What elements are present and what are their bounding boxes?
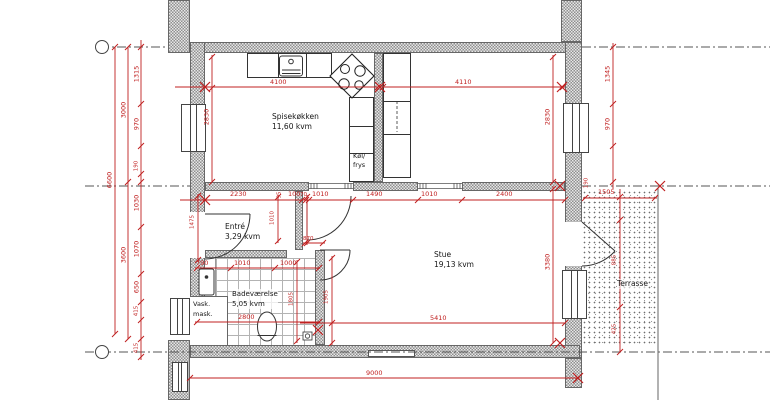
appliance-name: Køl/ [353, 152, 365, 160]
dim-label: 4110 [455, 79, 472, 86]
dim-label: 1505 [598, 189, 615, 196]
dim-label: 970 [134, 118, 141, 130]
room-area: 19,13 kvm [434, 260, 474, 269]
dim-label: 1010 [421, 191, 438, 198]
dim-label: 6600 [107, 172, 114, 189]
room-name: Terrasse [617, 279, 648, 288]
room-label-entre: Entré 3,29 kvm [225, 222, 260, 242]
dim-label: 5410 [430, 315, 447, 322]
room-name: Badeværelse [232, 290, 278, 298]
toilet-icon [258, 312, 277, 341]
stove-icon [330, 54, 374, 98]
dim-label: 1345 [605, 66, 612, 83]
appliance-name: Vask. [193, 300, 210, 308]
terrace-door-swing [582, 222, 615, 266]
plan-linework [0, 0, 770, 400]
room-area: 3,29 kvm [225, 232, 260, 241]
label-vask-mask: Vask. mask. [193, 299, 213, 319]
bathroom-sink-icon [199, 269, 214, 295]
room-area: 11,60 kvm [272, 122, 312, 131]
dim-label: 425 [612, 324, 619, 335]
dim-label: 70 [300, 192, 307, 199]
grid-axis-bubble [96, 41, 109, 54]
dim-label: 970 [605, 118, 612, 130]
kitchen-sink-icon [280, 56, 303, 76]
room-area: 5,05 kvm [232, 300, 265, 308]
room-label-stue: Stue 19,13 kvm [434, 250, 474, 270]
bathroom-door-swing [320, 250, 350, 280]
dim-label: 2230 [230, 191, 247, 198]
dim-label: 790 [196, 260, 208, 267]
dim-label: 415 [134, 343, 141, 354]
dim-label: 885 [612, 255, 619, 266]
grid-axis-bubbles [96, 41, 109, 359]
dim-label: 190 [584, 178, 591, 189]
dim-label: 1070 [134, 241, 141, 258]
appliance-name: frys [353, 161, 365, 169]
dim-label: 100 [288, 191, 300, 198]
dim-label: 2800 [238, 314, 255, 321]
dim-label: 1315 [134, 66, 141, 83]
room-label-terrasse: Terrasse [617, 279, 648, 289]
room-name: Entré [225, 222, 245, 231]
floor-plan: Spisekøkken 11,60 kvm Entré 3,29 kvm Stu… [0, 0, 770, 400]
dim-label: 3380 [545, 254, 552, 271]
dim-label: 870 [303, 236, 314, 243]
room-name: Stue [434, 250, 451, 259]
dim-label: 1010 [270, 211, 277, 225]
dim-label: 9000 [366, 370, 383, 377]
grid-axis-bubble [96, 346, 109, 359]
stue-door-swing [307, 196, 351, 240]
dim-label: 1010 [234, 260, 251, 267]
dim-label: 4100 [270, 79, 287, 86]
dim-label: 1475 [190, 215, 197, 229]
dim-label: 95 [277, 192, 284, 199]
floor-drain-icon [303, 332, 312, 340]
room-name: Spisekøkken [272, 112, 319, 121]
dim-label: 2830 [545, 109, 552, 126]
dim-label: 650 [134, 281, 141, 293]
dim-label: 3600 [121, 247, 128, 264]
dim-label: 2830 [204, 109, 211, 126]
dim-label: 1000 [280, 260, 297, 267]
dim-label: 2400 [496, 191, 513, 198]
dimension-lines [112, 40, 665, 383]
label-kol-frys: Køl/ frys [353, 152, 365, 170]
dim-label: 1010 [312, 191, 329, 198]
room-label-badevaerelse: Badeværelse 5,05 kvm [232, 289, 278, 309]
threshold-marks [309, 183, 462, 189]
dim-label: 1805 [289, 292, 296, 306]
room-label-spisekokken: Spisekøkken 11,60 kvm [272, 112, 319, 132]
dim-label: 415 [134, 306, 141, 317]
dim-label: 3000 [121, 102, 128, 119]
appliance-name: mask. [193, 310, 213, 318]
dim-label: 1905 [324, 290, 331, 304]
dim-label: 1030 [134, 195, 141, 212]
dim-label: 1490 [366, 191, 383, 198]
dim-label: 190 [134, 161, 141, 172]
grid-dashdot-lines [85, 47, 770, 352]
